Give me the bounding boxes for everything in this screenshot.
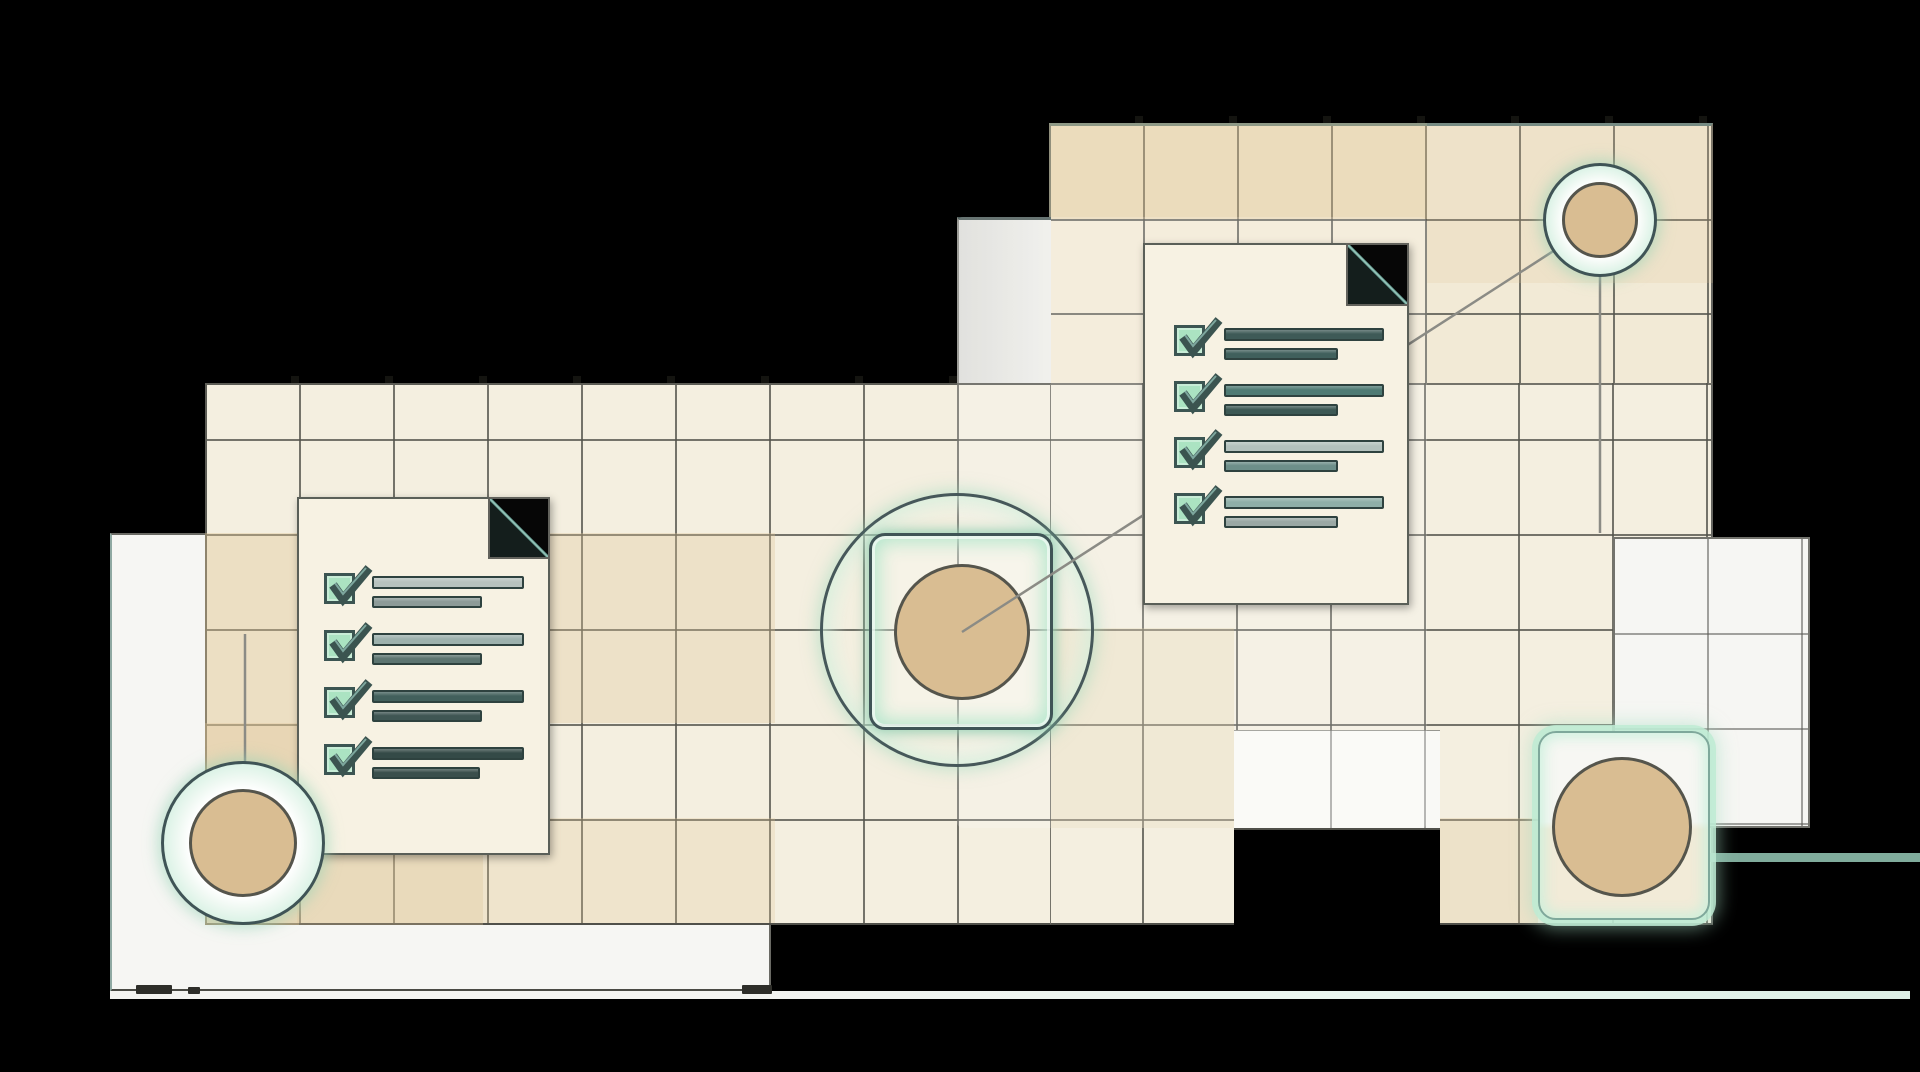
checked-checkbox-icon [1174,437,1205,468]
redacted-text-bar [1224,440,1384,453]
redacted-text-bar [372,596,482,608]
redacted-text-bar [1224,460,1338,472]
top-right-circle-node [1543,163,1657,277]
redacted-text-bar [1224,516,1338,528]
folded-corner [1346,243,1409,306]
floor-dash [136,985,172,994]
redacted-text-bar [1224,328,1384,341]
checked-checkbox-icon [324,630,355,661]
bottom-right-circle-core [1552,757,1692,897]
teal-beam-right [1710,853,1920,862]
checklist [1174,325,1384,549]
checklist [324,573,524,801]
redacted-text-bar [372,576,524,589]
bar-lines [1224,384,1384,416]
checked-checkbox-icon [324,687,355,718]
bar-lines [372,633,524,665]
checklist-item [1174,493,1384,525]
checkmark-icon [1178,313,1226,360]
checklist-item [324,573,524,605]
redacted-text-bar [1224,404,1338,416]
redacted-text-bar [1224,384,1384,397]
checkmark-icon [328,732,376,779]
bar-lines [372,576,524,608]
bottom-left-circle-core [189,789,297,897]
redacted-text-bar [372,653,482,665]
checklist-item [324,630,524,662]
bar-lines [1224,496,1384,528]
checklist-item [324,744,524,776]
bar-lines [372,747,524,779]
workflow-illustration-scene [0,0,1920,1072]
checked-checkbox-icon [1174,325,1205,356]
checklist-item [1174,437,1384,469]
redacted-text-bar [372,747,524,760]
checkmark-icon [328,561,376,608]
redacted-text-bar [1224,496,1384,509]
checked-checkbox-icon [324,573,355,604]
bottom-left-circle-node [161,761,325,925]
checked-checkbox-icon [324,744,355,775]
top-right-circle-core [1562,182,1638,258]
redacted-text-bar [372,633,524,646]
bar-lines [372,690,524,722]
folded-corner [488,497,550,559]
bar-lines [1224,328,1384,360]
checkmark-icon [328,675,376,722]
bottom-right-square-node [1538,731,1710,920]
floor-dash [188,987,200,994]
redacted-text-bar [372,767,480,779]
checkmark-icon [1178,369,1226,416]
checklist-document-right [1143,243,1409,605]
checklist-item [324,687,524,719]
checklist-item [1174,381,1384,413]
checkmark-icon [328,618,376,665]
redacted-text-bar [372,690,524,703]
redacted-text-bar [372,710,482,722]
redacted-text-bar [1224,348,1338,360]
checkmark-icon [1178,425,1226,472]
checkmark-icon [1178,481,1226,528]
checklist-item [1174,325,1384,357]
floor-dash [742,985,772,994]
checked-checkbox-icon [1174,381,1205,412]
bar-lines [1224,440,1384,472]
checked-checkbox-icon [1174,493,1205,524]
checklist-document-left [297,497,550,855]
floor-highlight-line [110,991,1910,999]
